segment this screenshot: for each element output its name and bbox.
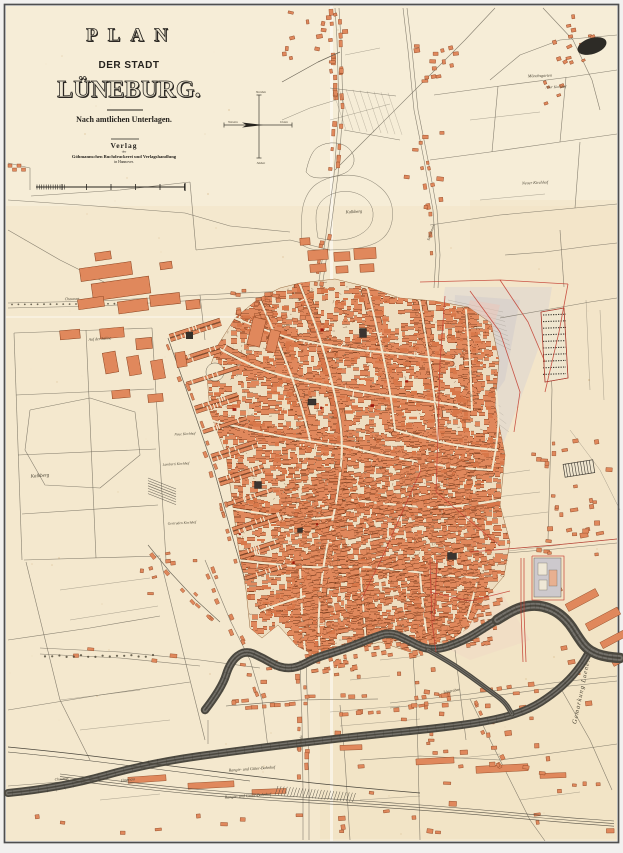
svg-text:Göhmannschen Buchdruckerei und: Göhmannschen Buchdruckerei und Verlagsha…: [72, 154, 177, 159]
svg-text:Chaussee: Chaussee: [65, 297, 80, 302]
svg-text:Norden: Norden: [255, 90, 267, 94]
svg-text:Kalkberg: Kalkberg: [345, 209, 364, 215]
svg-text:LÜNEBURG.: LÜNEBURG.: [57, 77, 201, 103]
svg-text:Mönchsgarten: Mönchsgarten: [527, 73, 552, 79]
svg-text:Osten: Osten: [280, 120, 288, 124]
svg-text:in Hannover.: in Hannover.: [114, 160, 134, 164]
svg-text:Straße: Straße: [299, 735, 304, 745]
svg-text:PLAN: PLAN: [86, 25, 178, 46]
svg-text:Neuer Kirchhof: Neuer Kirchhof: [521, 180, 549, 186]
svg-text:Westen: Westen: [228, 120, 238, 124]
svg-text:Alter Kirchhof: Alter Kirchhof: [545, 85, 568, 90]
svg-text:Süden: Süden: [257, 161, 266, 165]
svg-text:DER STADT: DER STADT: [99, 60, 160, 71]
svg-text:Nach amtlichen Unterlagen.: Nach amtlichen Unterlagen.: [76, 115, 172, 124]
